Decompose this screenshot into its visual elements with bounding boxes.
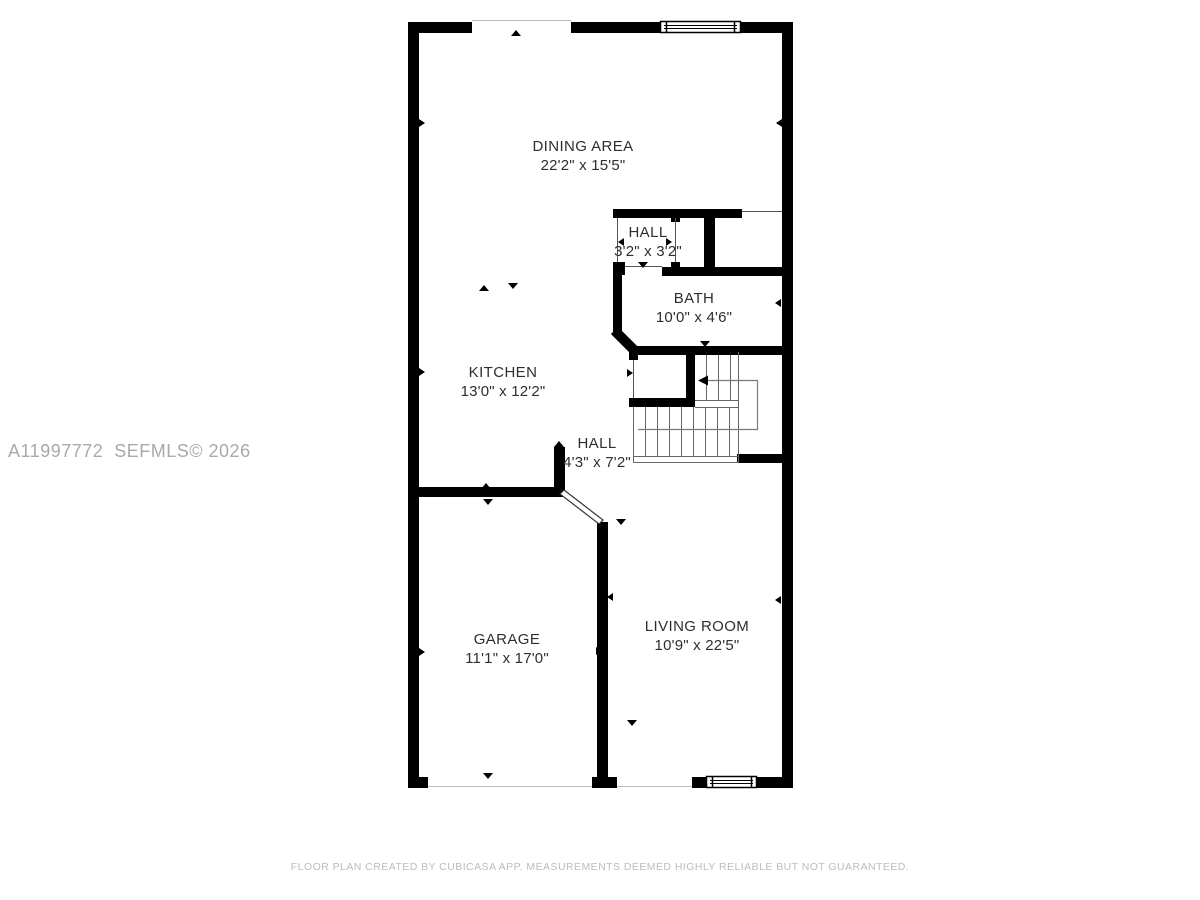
wall-openings (618, 212, 783, 399)
walls (408, 22, 793, 788)
floor-plan-page: DINING AREA 22'2" x 15'5" HALL 3'2" x 3'… (0, 0, 1200, 900)
mls-watermark: A11997772 SEFMLS© 2026 (8, 441, 251, 462)
window-top (661, 22, 741, 33)
window-bottom (707, 777, 757, 788)
staircase (633, 352, 739, 463)
footer-disclaimer: FLOOR PLAN CREATED BY CUBICASA APP. MEAS… (0, 861, 1200, 873)
door-leaf (560, 490, 603, 524)
